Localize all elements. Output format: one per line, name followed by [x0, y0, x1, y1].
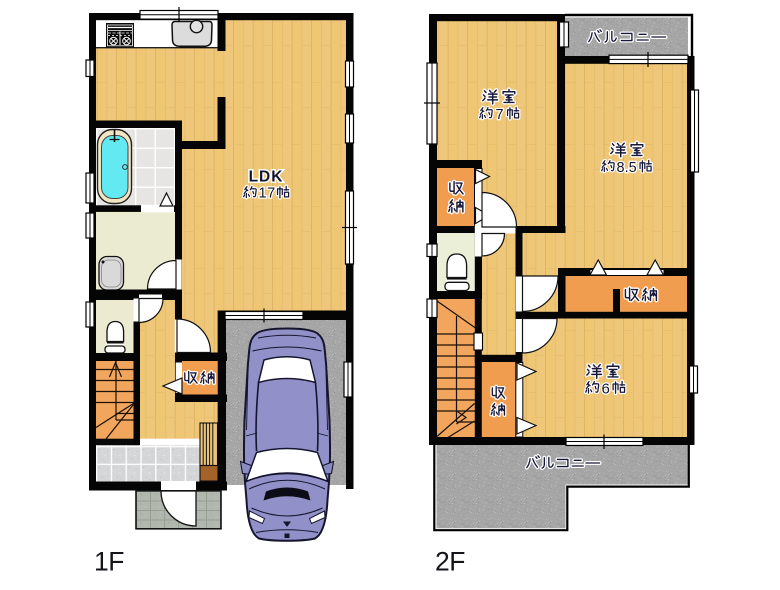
- svg-text:1F: 1F: [94, 547, 124, 577]
- svg-text:6: 6: [602, 380, 610, 397]
- svg-text:8.5: 8.5: [617, 160, 637, 176]
- svg-text:17: 17: [259, 186, 276, 202]
- svg-text:2F: 2F: [435, 547, 465, 577]
- svg-text:LDK: LDK: [249, 169, 284, 186]
- svg-text:7: 7: [496, 107, 504, 123]
